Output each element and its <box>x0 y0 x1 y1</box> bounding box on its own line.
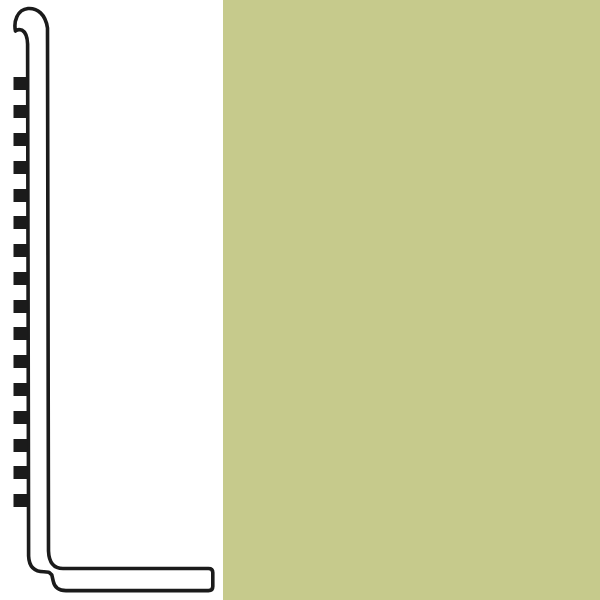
rib-tooth <box>14 355 28 368</box>
product-image <box>0 0 600 600</box>
color-swatch <box>223 0 600 600</box>
rib-tooth <box>14 189 28 202</box>
rib-tooth <box>14 77 28 90</box>
rib-tooth <box>14 105 28 118</box>
rib-tooth <box>14 466 28 479</box>
rib-tooth <box>14 439 28 452</box>
rib-tooth <box>14 272 28 285</box>
teeth-group <box>14 77 28 507</box>
profile-panel <box>0 0 223 600</box>
rib-tooth <box>14 244 28 257</box>
profile-outline <box>15 8 213 590</box>
rib-tooth <box>14 494 28 507</box>
rib-tooth <box>14 300 28 313</box>
rib-tooth <box>14 161 28 174</box>
rib-tooth <box>14 216 28 229</box>
rib-tooth <box>14 327 28 340</box>
rib-tooth <box>14 383 28 396</box>
rib-tooth <box>14 133 28 146</box>
rib-tooth <box>14 411 28 424</box>
